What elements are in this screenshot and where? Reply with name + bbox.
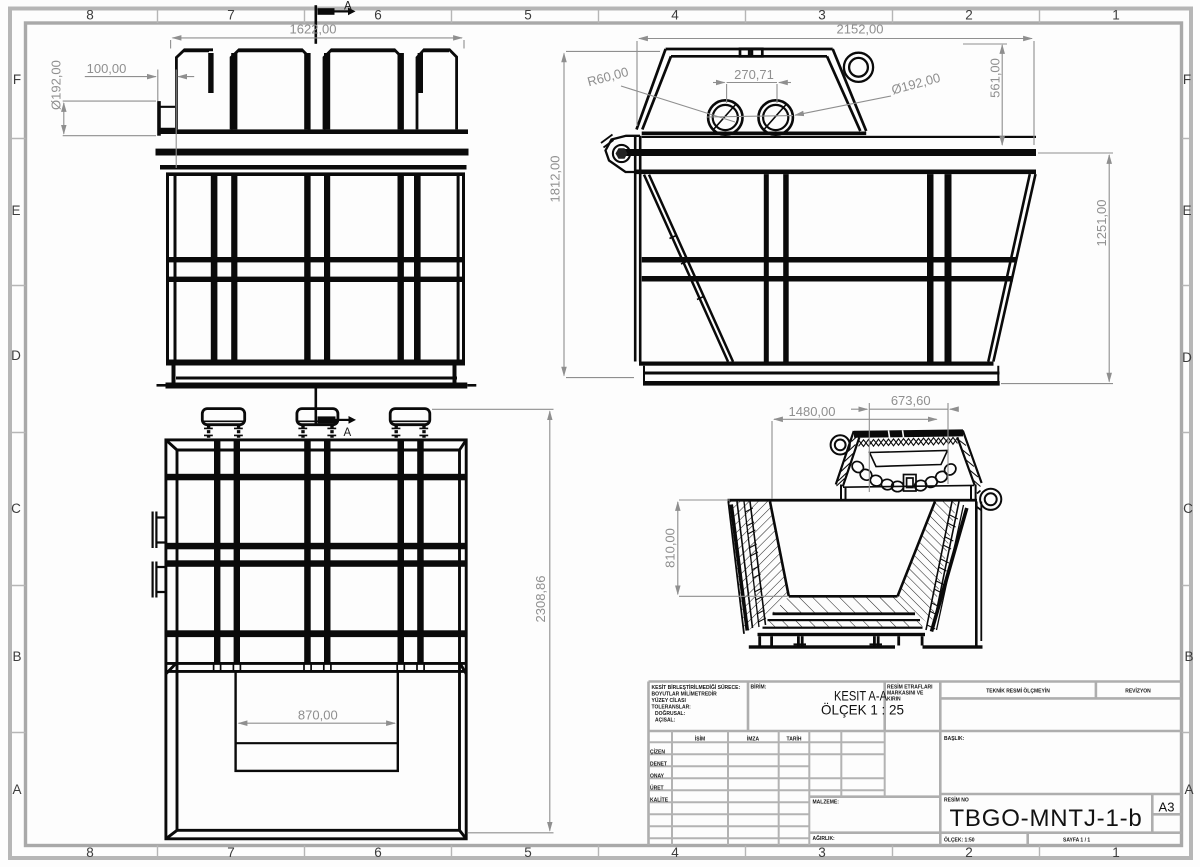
svg-text:ÇİZEN: ÇİZEN	[650, 749, 665, 756]
svg-text:2152,00: 2152,00	[837, 22, 884, 37]
svg-text:KALİTE: KALİTE	[650, 797, 669, 804]
svg-text:AÇISAL:: AÇISAL:	[655, 718, 676, 724]
svg-text:5: 5	[524, 845, 532, 860]
svg-text:DENET: DENET	[650, 762, 667, 768]
svg-text:ÖLÇEK: 1:50: ÖLÇEK: 1:50	[944, 837, 975, 844]
svg-text:673,60: 673,60	[891, 393, 931, 408]
svg-text:E: E	[11, 203, 20, 218]
svg-text:B: B	[1184, 649, 1193, 664]
svg-text:TEKNİK RESMİ ÖLÇMEYİN: TEKNİK RESMİ ÖLÇMEYİN	[986, 688, 1050, 695]
svg-text:5: 5	[524, 8, 532, 23]
svg-text:A: A	[344, 427, 352, 439]
svg-text:RESİM NO: RESİM NO	[944, 797, 969, 804]
svg-text:B: B	[12, 649, 21, 664]
svg-text:6: 6	[374, 845, 382, 860]
svg-text:TBGO-MNTJ-1-b: TBGO-MNTJ-1-b	[949, 805, 1142, 832]
svg-text:270,71: 270,71	[734, 67, 774, 82]
svg-text:810,00: 810,00	[663, 528, 678, 568]
svg-text:KESİT BİRLEŞTİRİLMEDİĞİ SÜRECE: KESİT BİRLEŞTİRİLMEDİĞİ SÜRECE:	[652, 683, 741, 691]
svg-text:F: F	[1183, 72, 1191, 87]
svg-text:A: A	[344, 1, 352, 13]
svg-text:C: C	[11, 501, 21, 516]
svg-text:C: C	[1183, 501, 1193, 516]
svg-text:SAYFA 1 / 1: SAYFA 1 / 1	[1063, 838, 1090, 844]
svg-text:7: 7	[227, 8, 235, 23]
svg-text:7: 7	[227, 845, 235, 860]
svg-text:100,00: 100,00	[87, 61, 127, 76]
svg-text:1: 1	[1112, 8, 1120, 23]
svg-text:1812,00: 1812,00	[548, 156, 563, 203]
svg-text:A: A	[12, 782, 21, 797]
svg-text:6: 6	[374, 8, 382, 23]
svg-text:Ø192,00: Ø192,00	[49, 60, 64, 110]
svg-text:E: E	[1182, 203, 1191, 218]
svg-text:A3: A3	[1159, 800, 1175, 815]
svg-text:ONAY: ONAY	[650, 774, 665, 780]
svg-text:D: D	[1182, 350, 1192, 365]
svg-text:DOĞRUSAL:: DOĞRUSAL:	[655, 709, 686, 717]
svg-text:F: F	[13, 72, 21, 87]
svg-text:İMZA: İMZA	[747, 736, 760, 743]
svg-text:TARİH: TARİH	[787, 736, 802, 743]
svg-text:ÖLÇEK 1 : 25: ÖLÇEK 1 : 25	[821, 701, 904, 718]
svg-text:TOLERANSLAR:: TOLERANSLAR:	[652, 705, 692, 711]
svg-text:8: 8	[86, 845, 94, 860]
svg-text:BİRİM:: BİRİM:	[751, 684, 767, 691]
svg-text:1622,00: 1622,00	[290, 22, 337, 37]
svg-text:YÜZEY CİLASI: YÜZEY CİLASI	[652, 697, 687, 704]
svg-text:3: 3	[818, 8, 826, 23]
svg-text:A: A	[1184, 782, 1193, 797]
svg-text:1: 1	[1112, 845, 1120, 860]
svg-text:3: 3	[818, 845, 826, 860]
svg-text:RESİM ETRAFLARI: RESİM ETRAFLARI	[887, 684, 933, 691]
svg-text:4: 4	[671, 845, 679, 860]
svg-text:MALZEME:: MALZEME:	[813, 800, 840, 806]
svg-text:AĞIRLIK:: AĞIRLIK:	[813, 834, 836, 842]
svg-text:D: D	[11, 348, 21, 363]
svg-text:870,00: 870,00	[298, 708, 338, 723]
svg-text:561,00: 561,00	[988, 58, 1003, 98]
svg-text:ÜRET: ÜRET	[650, 785, 664, 792]
svg-text:4: 4	[671, 8, 679, 23]
svg-text:2: 2	[965, 845, 973, 860]
svg-text:8: 8	[86, 8, 94, 23]
svg-text:BAŞLIK:: BAŞLIK:	[944, 736, 965, 742]
svg-text:REVİZYON: REVİZYON	[1125, 688, 1151, 695]
svg-text:2308,86: 2308,86	[533, 576, 548, 623]
svg-text:1251,00: 1251,00	[1094, 200, 1109, 247]
svg-text:2: 2	[965, 8, 973, 23]
svg-text:1480,00: 1480,00	[789, 404, 836, 419]
svg-text:İSİM: İSİM	[695, 736, 705, 743]
svg-text:BOYUTLAR MİLİMETREDİR: BOYUTLAR MİLİMETREDİR	[652, 691, 718, 698]
